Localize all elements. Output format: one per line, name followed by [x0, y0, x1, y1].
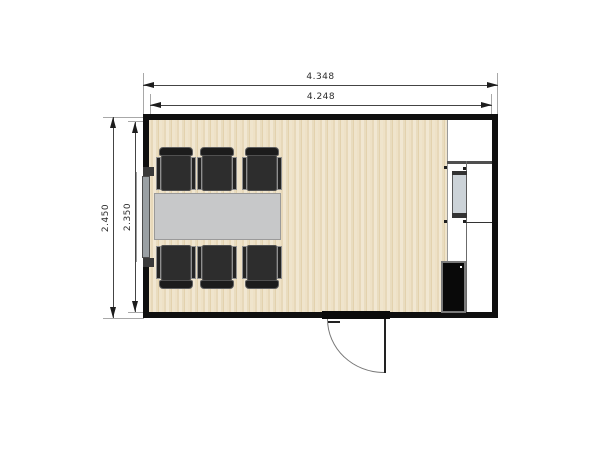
chair-seat	[247, 155, 277, 191]
dimension-label-top-outer: 4.348	[306, 72, 334, 82]
fastener-dot	[463, 167, 466, 170]
extension-line-top-right-outer	[497, 73, 498, 115]
chair-seat	[202, 245, 232, 281]
dimension-top-inner: 4.248	[150, 105, 492, 106]
chair-armrest	[277, 246, 282, 279]
chair-armrest	[191, 157, 196, 190]
chair-armrest	[232, 246, 237, 279]
dimension-top-outer: 4.348	[143, 85, 498, 86]
fastener-dot	[444, 166, 447, 169]
window-sill-line	[136, 172, 137, 262]
fastener-dot	[463, 220, 466, 223]
dimension-label-left-outer: 2.450	[101, 203, 111, 231]
chair-backrest	[200, 280, 234, 289]
arrowhead-right-icon	[481, 102, 492, 108]
door-header	[322, 311, 390, 319]
window-jamb-top	[143, 167, 154, 176]
chair	[242, 245, 282, 289]
chair	[197, 245, 237, 289]
window-pane	[142, 176, 150, 258]
chair-seat	[161, 155, 191, 191]
chair-armrest	[191, 246, 196, 279]
extension-line-left-bottom-outer	[103, 318, 144, 319]
chair	[197, 147, 237, 191]
door-leaf	[384, 319, 386, 373]
chair	[156, 147, 196, 191]
dimension-label-left-inner: 2.350	[123, 203, 133, 231]
radiator-end-cap	[452, 213, 467, 218]
window-jamb-bottom	[143, 258, 154, 267]
arrowhead-down-icon	[132, 301, 138, 312]
chair-armrest	[156, 246, 161, 279]
conference-table	[154, 193, 281, 240]
chair-backrest	[159, 280, 193, 289]
chair	[242, 147, 282, 191]
chair-armrest	[277, 157, 282, 190]
arrowhead-down-icon	[110, 307, 116, 318]
chair-armrest	[197, 246, 202, 279]
door-jamb-tick	[328, 321, 340, 323]
arrowhead-left-icon	[150, 102, 161, 108]
shelf-edge-line	[447, 161, 492, 164]
shelf-line-lower	[466, 222, 492, 223]
chair-seat	[202, 155, 232, 191]
fastener-dot	[444, 220, 447, 223]
electrical-cabinet	[441, 261, 466, 313]
dimension-label-top-inner: 4.248	[307, 92, 335, 102]
arrowhead-up-icon	[110, 117, 116, 128]
chair-armrest	[242, 157, 247, 190]
arrowhead-left-icon	[143, 82, 154, 88]
wall-radiator	[452, 171, 467, 218]
chair-seat	[247, 245, 277, 281]
arrowhead-up-icon	[132, 122, 138, 133]
chair-seat	[161, 245, 191, 281]
extension-line-top-left-outer	[143, 73, 144, 115]
arrowhead-right-icon	[487, 82, 498, 88]
chair-armrest	[232, 157, 237, 190]
chair-armrest	[156, 157, 161, 190]
chair-backrest	[245, 280, 279, 289]
chair	[156, 245, 196, 289]
radiator-end-cap	[452, 171, 467, 175]
floorplan-canvas: 4.348 4.248 2.450 2.350	[0, 0, 610, 450]
dimension-left-outer: 2.450	[113, 117, 114, 318]
chair-armrest	[197, 157, 202, 190]
chair-armrest	[242, 246, 247, 279]
door-swing-arc	[327, 319, 384, 373]
cabinet-handle	[460, 266, 462, 268]
